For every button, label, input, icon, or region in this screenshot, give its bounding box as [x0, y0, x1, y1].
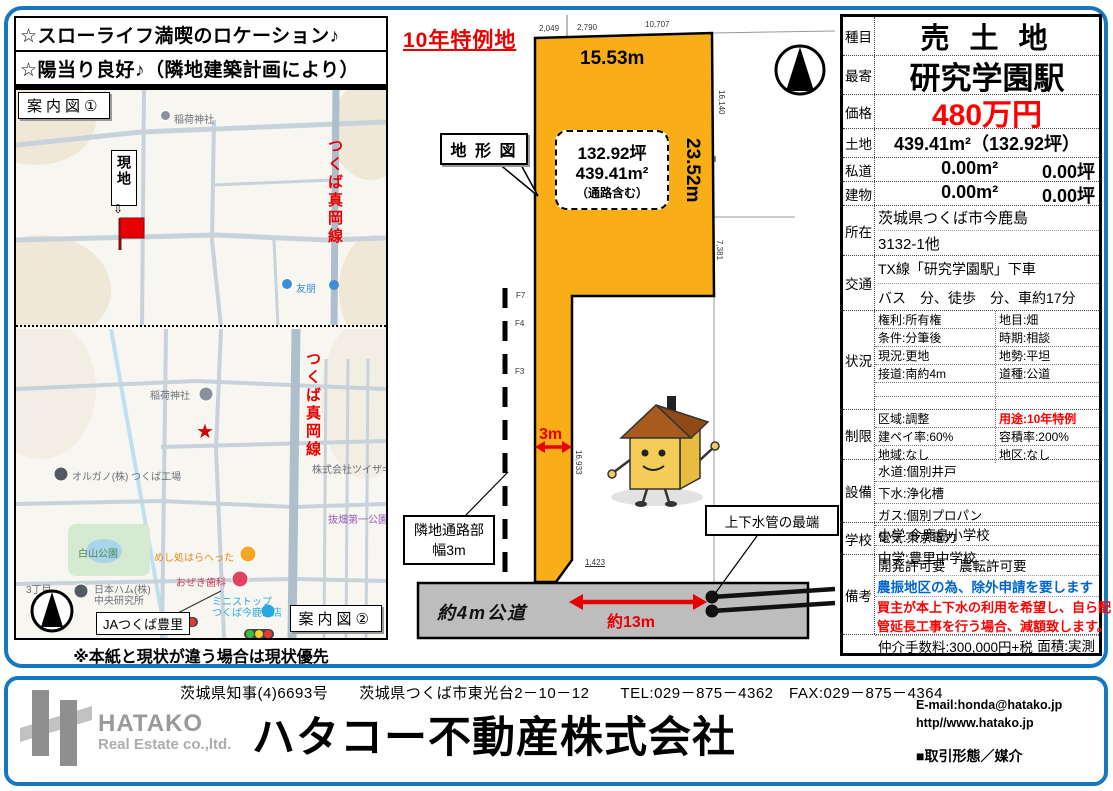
dim-chamfer: 1,423 — [585, 558, 605, 567]
area-tsubo: 132.92坪 — [578, 139, 647, 164]
special-zone-label: 10年特例地 — [403, 24, 516, 54]
deal-type-text: ■取引形態／媒介 — [916, 746, 1022, 766]
guide-map-1: 案内図① 稲荷神社 現地 ⇩ つくば真岡線 友朋 — [16, 90, 386, 327]
poi-ministop-label2: つくば今鹿島店 — [212, 604, 282, 619]
poi-tsuizaki-label: 株式会社ツイザキ — [312, 461, 386, 476]
map2-route-label: つくば真岡線 — [302, 351, 323, 459]
row-price: 価格 480万円 — [843, 95, 1099, 129]
poi-yuho-icon — [281, 278, 293, 290]
hatako-logo-icon — [20, 688, 95, 768]
shape-map-title: 地 形 図 — [440, 133, 528, 165]
map2-north-compass-icon — [28, 587, 76, 635]
row-land: 土地 439.41m²（132.92坪） — [843, 129, 1099, 158]
guide-maps: 案内図① 稲荷神社 現地 ⇩ つくば真岡線 友朋 — [14, 88, 388, 640]
neighbor-callout: 隣地通路部 幅3m — [403, 515, 495, 565]
pipe-callout: 上下水管の最端 — [705, 505, 839, 536]
site-star-icon: ★ — [196, 419, 214, 444]
poi-park-label: 白山公園 — [78, 545, 118, 560]
f4-label: F4 — [515, 319, 524, 328]
poi-nipponham-label2: 中央研究所 — [94, 592, 144, 607]
row-access: 交通 TX線「研究学園駅」下車 バス 分、徒歩 分、車約17分 — [843, 256, 1099, 311]
poi-dental-label: おぜき歯科 — [176, 574, 226, 589]
map2-shrine-label: 稲荷神社 — [150, 387, 190, 402]
dim-right-b: 7,381 — [715, 240, 724, 260]
logo-subtext: Real Estate co.,ltd. — [98, 736, 231, 753]
site-callout: 現地 — [111, 150, 137, 206]
website-text: http//www.hatako.jp — [916, 716, 1034, 730]
road-label: 約4m公道 — [437, 599, 527, 625]
map1-shrine-label: 稲荷神社 — [174, 111, 214, 126]
dim-top-c: 10,707 — [645, 20, 669, 29]
catch-copy-box: ☆スローライフ満喫のロケーション♪ ☆陽当り良好♪（隣地建築計画により） — [14, 16, 388, 88]
shrine-icon — [160, 110, 171, 121]
poi-nukihata-label: 抜畑第一公園 — [328, 511, 386, 526]
map2-label: 案内図② — [290, 605, 382, 632]
dim-corridor: 16,933 — [574, 450, 583, 474]
ja-callout: JAつくば豊里 — [96, 612, 190, 635]
distance-label: 約13m — [607, 608, 655, 632]
company-name: ハタコー不動産株式会社 — [252, 703, 736, 765]
row-type: 種目 売 土 地 — [843, 17, 1099, 56]
catch-line-1: ☆スローライフ満喫のロケーション♪ — [16, 18, 386, 52]
logo-text: HATAKO — [98, 710, 203, 738]
row-remarks: 備考 開発許可要 農転許可要 農振地区の為、除外申請を要します 買主が本上下水の… — [843, 555, 1099, 635]
map-disclaimer: ※本紙と現状が違う場合は現状優先 — [14, 643, 388, 667]
row-private-road: 私道 0.00m² 0.00坪 — [843, 158, 1099, 182]
row-building: 建物 0.00m² 0.00坪 — [843, 182, 1099, 206]
traffic-light-icon-2 — [244, 629, 274, 638]
f7-label: F7 — [516, 291, 525, 300]
house-mascot-icon — [608, 396, 719, 507]
row-utilities: 設備 水道:個別井戸 下水:浄化槽 ガス:個別プロパン 電気:東京電力 — [843, 460, 1099, 523]
poi-organo-label: オルガノ(株) つくば工場 — [72, 468, 181, 483]
site-arrow-icon: ⇩ — [113, 202, 123, 216]
map1-label: 案内図① — [18, 92, 110, 119]
north-compass-icon — [776, 46, 824, 94]
dim-top-a: 2,049 — [539, 24, 559, 33]
company-logo: HATAKO Real Estate co.,ltd. — [20, 688, 250, 772]
row-location: 所在 茨城県つくば市今鹿島 3132-1他 — [843, 206, 1099, 256]
area-note: （通路含む） — [576, 184, 648, 201]
row-schools: 学校 小学:今鹿島小学校 中学:豊里中学校 — [843, 523, 1099, 555]
area-sqm: 439.41m² — [576, 164, 649, 184]
poi-yuho-label: 友朋 — [296, 280, 316, 295]
f3-label: F3 — [515, 367, 524, 376]
row-area-note: 面積:実測 — [843, 635, 1099, 653]
dim-right-a: 16,140 — [717, 90, 726, 114]
catch-line-2: ☆陽当り良好♪（隣地建築計画により） — [16, 52, 386, 86]
map1-route-label: つくば真岡線 — [324, 138, 345, 246]
plot-diagram: 10年特例地 地 形 図 15.53m 23.52m 132.92坪 439.4… — [395, 10, 843, 666]
flyer-page: ☆スローライフ満喫のロケーション♪ ☆陽当り良好♪（隣地建築計画により） — [0, 0, 1113, 791]
poi-restaurant-label: めし処はらへった — [154, 549, 234, 564]
email-text: E-mail:honda@hatako.jp — [916, 698, 1062, 712]
width-dimension: 15.53m — [580, 48, 644, 70]
guide-map-2: 稲荷神社 ★ つくば真岡線 オルガノ(株) つくば工場 白山公園 日本ハム(株)… — [16, 329, 386, 638]
corridor-width-label: 3m — [539, 426, 562, 444]
property-spec-table: 種目 売 土 地 最寄 研究学園駅 価格 480万円 土地 439.41m²（1… — [840, 14, 1102, 656]
pipe-end-dot-2 — [706, 605, 719, 618]
plot-diagram-svg — [395, 10, 843, 666]
dim-top-b: 2,790 — [577, 23, 597, 32]
height-dimension: 23.52m — [681, 138, 703, 202]
row-status: 状況 権利:所有権地目:畑 条件:分筆後時期:相談 現況:更地地勢:平坦 接道:… — [843, 311, 1099, 410]
area-box: 132.92坪 439.41m² （通路含む） — [555, 130, 669, 210]
row-restrictions: 制限 区域:調整用途:10年特例 建ペイ率:60%容積率:200% 地域:なし地… — [843, 410, 1099, 460]
